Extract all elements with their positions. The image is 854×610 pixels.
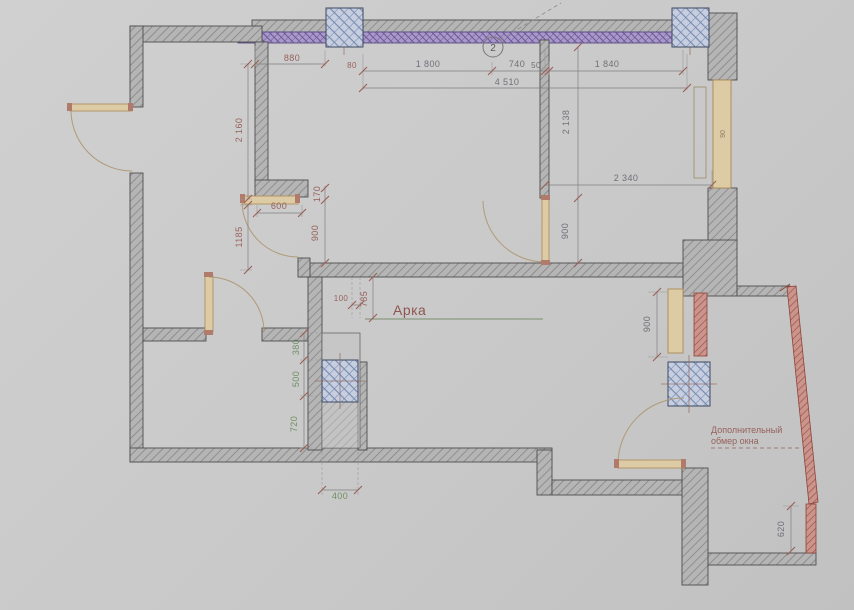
wall-left-main xyxy=(130,173,143,462)
wall-hall-right xyxy=(255,42,268,181)
dim-170: 170 xyxy=(312,186,322,202)
wall-right-stub xyxy=(737,286,790,296)
dim-500: 500 xyxy=(291,371,301,387)
window-note-line2: обмер окна xyxy=(711,436,759,446)
survey-red-elements xyxy=(694,284,818,553)
door-hinge-marks xyxy=(67,103,686,468)
dim-1840: 1 840 xyxy=(595,59,620,69)
wall-lowerleft-top-b xyxy=(262,328,308,341)
dim-50: 50 xyxy=(531,61,541,70)
doors xyxy=(67,103,686,468)
wall-hall-step xyxy=(255,180,308,197)
wall-bottom-step xyxy=(537,450,552,495)
door-mid-arc xyxy=(483,201,545,262)
glazing-band xyxy=(238,32,672,43)
door-mid-leaf xyxy=(542,198,549,262)
wall-bottom-main xyxy=(130,448,552,462)
dim-100: 100 xyxy=(334,294,349,303)
wall-lowerleft-top-a xyxy=(143,328,206,341)
wall-shaft-left xyxy=(308,277,322,450)
window-size-label: 90 xyxy=(720,130,727,138)
dim-380: 380 xyxy=(291,339,301,355)
dim-400: 400 xyxy=(332,491,348,501)
door-lowerleft-arc xyxy=(209,277,264,332)
column-top-left xyxy=(326,8,363,47)
dim-880: 880 xyxy=(284,53,300,63)
wall-bottom-lower xyxy=(552,480,683,495)
column-axis-ticks xyxy=(315,47,717,413)
dim-900-window: 900 xyxy=(642,316,652,332)
wall-partition-mid xyxy=(540,40,549,198)
wall-hall-top xyxy=(130,26,262,42)
dim-2138: 2 138 xyxy=(561,110,571,135)
door-entry-leaf xyxy=(70,104,132,111)
survey-vertical-band xyxy=(806,504,816,553)
survey-diagonal-band xyxy=(787,286,818,504)
callout-number: 2 xyxy=(490,43,496,54)
dim-1800: 1 800 xyxy=(416,59,441,69)
door-balcony-arc xyxy=(618,398,684,464)
window-right-inner xyxy=(694,87,706,178)
dim-4510: 4 510 xyxy=(495,77,520,87)
window-note-line1: Дополнительный xyxy=(711,425,782,435)
wall-rooms-bottom-end xyxy=(298,258,310,277)
wall-bottomright-vert xyxy=(682,468,708,585)
wall-left-upper xyxy=(130,26,143,107)
window-lower-right xyxy=(668,289,683,353)
door-balcony-leaf xyxy=(618,460,684,468)
dim-620: 620 xyxy=(776,521,786,537)
dim-720: 720 xyxy=(289,416,299,432)
arch-label: Арка xyxy=(393,302,426,318)
dim-900-mid: 900 xyxy=(560,223,570,239)
dim-785: 785 xyxy=(359,291,369,307)
dimension-ticks xyxy=(244,43,795,555)
wall-right-mid xyxy=(708,188,737,246)
wall-rooms-bottom xyxy=(300,263,683,277)
wall-right-corner xyxy=(683,240,737,296)
dim-600: 600 xyxy=(271,201,287,211)
dim-2160: 2 160 xyxy=(234,118,244,143)
wall-top-balcony xyxy=(252,20,737,32)
column-top-right xyxy=(672,8,709,47)
dim-900-left: 900 xyxy=(310,225,320,241)
dim-740: 740 xyxy=(509,59,525,69)
door-lowerleft-leaf xyxy=(205,276,213,332)
wall-right-top xyxy=(708,13,737,80)
dim-80: 80 xyxy=(347,61,357,70)
floor-plan: 880 80 1 800 740 50 1 840 4 510 2 160 11… xyxy=(0,0,854,610)
dim-2340: 2 340 xyxy=(614,173,639,183)
door-entry-arc xyxy=(71,110,132,171)
dim-1185: 1185 xyxy=(234,227,244,248)
dimension-lines xyxy=(248,47,791,551)
wall-bottomright-horiz xyxy=(708,553,816,565)
survey-window-band xyxy=(694,293,707,356)
